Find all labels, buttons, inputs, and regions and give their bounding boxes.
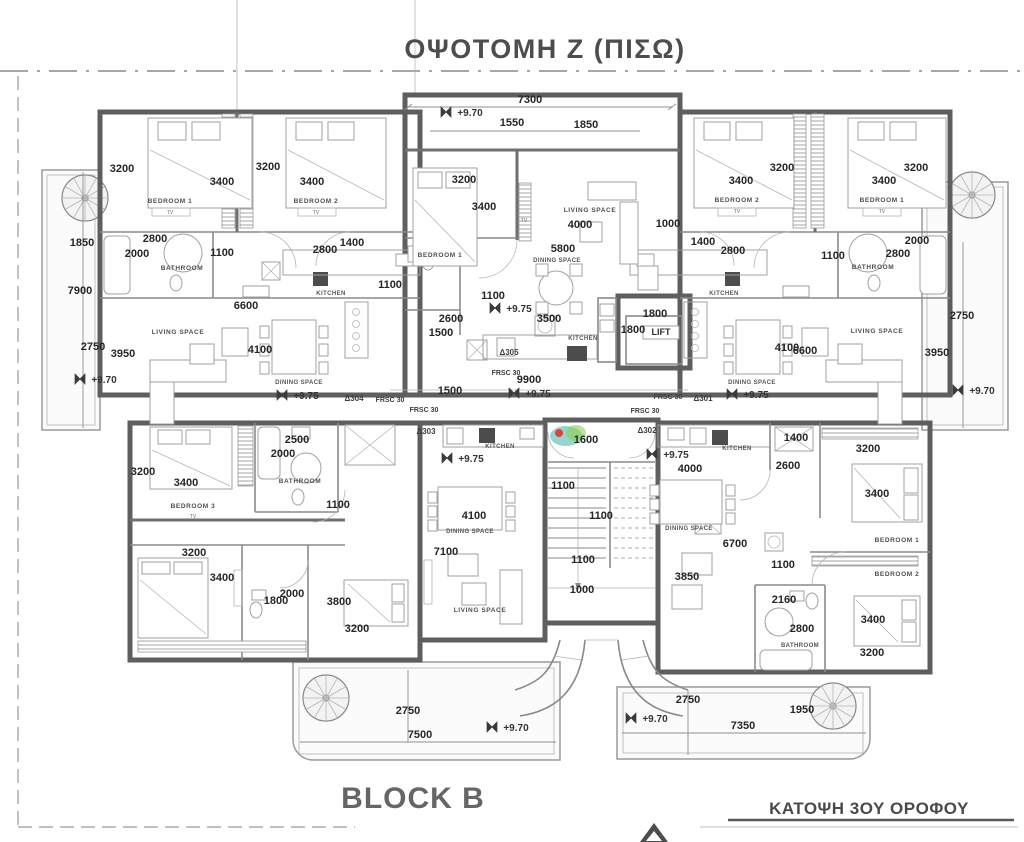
room-label: DINING SPACE xyxy=(728,380,776,386)
dimension-label: 3200 xyxy=(856,443,880,455)
door-marker-label: Δ301 xyxy=(693,394,713,403)
dimension-label: 3850 xyxy=(675,571,699,583)
wardrobe xyxy=(138,641,306,652)
room-label: BEDROOM 3 xyxy=(171,503,216,510)
level-marker-label: +9.70 xyxy=(457,108,483,119)
dimension-label: 3200 xyxy=(904,162,928,174)
door-swing xyxy=(280,560,308,588)
dimension-label: 4100 xyxy=(775,342,799,354)
room-label: KITCHEN xyxy=(709,291,738,297)
level-marker-icon xyxy=(442,453,452,463)
coffee-table xyxy=(672,585,702,609)
dining-table xyxy=(736,320,780,374)
room-label: BEDROOM 1 xyxy=(148,198,193,205)
dimension-label: 6600 xyxy=(234,300,258,312)
fire-rating-label: FRSC 30 xyxy=(410,407,439,414)
coffee-table xyxy=(838,344,862,364)
dimension-label: 3200 xyxy=(110,163,134,175)
room-label: BEDROOM 2 xyxy=(294,198,339,205)
dimension-label: 7900 xyxy=(68,285,92,297)
room-label: DINING SPACE xyxy=(665,526,713,532)
dimension-label: 7350 xyxy=(731,720,755,732)
dimension-label: 2800 xyxy=(143,233,167,245)
dimension-label: 4000 xyxy=(678,463,702,475)
armchair xyxy=(222,328,248,356)
appliance xyxy=(712,430,728,445)
dimension-label: 1500 xyxy=(438,385,462,397)
dimension-label: 2600 xyxy=(439,313,463,325)
spiral-staircase xyxy=(810,683,856,729)
dimension-label: 2750 xyxy=(81,341,105,353)
door-swing xyxy=(479,240,517,278)
level-marker-label: +9.75 xyxy=(743,390,769,401)
fridge xyxy=(690,428,706,444)
toilet xyxy=(170,275,182,291)
level-marker-label: +9.70 xyxy=(642,714,668,725)
dimension-label: 2750 xyxy=(396,705,420,717)
dimension-label: 3400 xyxy=(210,572,234,584)
dimension-label: 3950 xyxy=(925,347,949,359)
toilet xyxy=(868,275,880,291)
dimension-label: 3400 xyxy=(210,176,234,188)
dimension-label: 3400 xyxy=(174,477,198,489)
dimension-label: 1550 xyxy=(500,117,524,129)
room-label: DINING SPACE xyxy=(533,258,581,264)
dimension-label: 2800 xyxy=(721,245,745,257)
level-marker-icon xyxy=(490,303,500,313)
level-marker-icon xyxy=(647,449,657,459)
wardrobe xyxy=(812,556,918,566)
tv-label: TV xyxy=(313,210,320,216)
dimension-label: 1100 xyxy=(210,247,234,259)
dimension-label: 2800 xyxy=(886,248,910,260)
dimension-label: 4000 xyxy=(568,219,592,231)
dimension-label: 3200 xyxy=(131,466,155,478)
dimension-label: 7300 xyxy=(518,94,542,106)
fridge xyxy=(447,428,463,444)
sofa xyxy=(150,360,226,382)
dining-table xyxy=(438,487,502,530)
dimension-label: 1800 xyxy=(264,595,288,607)
dimension-label: 3400 xyxy=(865,488,889,500)
level-marker-label: +9.75 xyxy=(525,389,551,400)
door-marker-label: Δ302 xyxy=(637,426,657,435)
level-marker-icon xyxy=(277,390,287,400)
basin xyxy=(243,286,269,297)
dimension-label: 7500 xyxy=(408,729,432,741)
dimension-label: 1100 xyxy=(378,279,402,291)
plan-title: ΚΑΤΟΨΗ 3ΟΥ ΟΡΟΦΟΥ xyxy=(769,799,969,818)
dimension-label: 1100 xyxy=(551,480,575,492)
tv-label: TV xyxy=(190,514,197,520)
staircase-interior xyxy=(548,425,655,591)
level-marker-label: +9.75 xyxy=(458,454,484,465)
unit-top-left-interior xyxy=(100,112,420,424)
dimension-label: 3200 xyxy=(452,174,476,186)
tv-unit xyxy=(424,560,432,604)
dimension-label: 1100 xyxy=(821,250,845,262)
room-label: KITCHEN xyxy=(485,444,514,450)
room-label: KITCHEN xyxy=(722,446,751,452)
dimension-label: 1400 xyxy=(340,237,364,249)
bathtub xyxy=(104,236,130,294)
coffee-table xyxy=(190,344,214,364)
dimension-label: 2750 xyxy=(950,310,974,322)
lift-label: LIFT xyxy=(652,327,671,337)
room-label: BEDROOM 1 xyxy=(860,197,905,204)
room-label: BATHROOM xyxy=(161,265,204,272)
level-marker-label: +9.70 xyxy=(969,386,995,397)
dimension-label: 1850 xyxy=(70,237,94,249)
dimension-label: 3200 xyxy=(770,162,794,174)
sofa xyxy=(826,360,902,382)
dimension-label: 1000 xyxy=(656,218,680,230)
toilet xyxy=(250,602,262,618)
dining-table xyxy=(660,480,722,524)
dining-table xyxy=(272,320,316,374)
block-label: BLOCK B xyxy=(341,782,485,815)
dimension-label: 1850 xyxy=(574,119,598,131)
room-label: LIVING SPACE xyxy=(851,328,904,335)
wardrobe xyxy=(238,426,253,486)
tv-wall xyxy=(519,183,531,241)
room-label: DINING SPACE xyxy=(446,529,494,535)
room-label: BEDROOM 1 xyxy=(875,537,920,544)
room-label: LIVING SPACE xyxy=(152,329,205,336)
footer-marks xyxy=(640,820,1018,842)
basin xyxy=(783,286,809,297)
level-marker-label: +9.70 xyxy=(503,723,529,734)
sink xyxy=(520,428,534,439)
dimension-label: 2600 xyxy=(776,460,800,472)
level-marker-label: +9.70 xyxy=(91,375,117,386)
fire-rating-label: FRSC 30 xyxy=(631,408,660,415)
room-label: BATHROOM xyxy=(781,643,819,649)
dimension-label: 7100 xyxy=(434,546,458,558)
dimension-label: 1100 xyxy=(771,559,795,571)
floor-plan-page: ΟΨΟΤΟΜΗ Ζ (ΠΙΣΩ) BLOCK B ΚΑΤΟΨΗ 3ΟΥ ΟΡΟΦ… xyxy=(0,0,1024,842)
dimension-label: 3400 xyxy=(729,175,753,187)
room-label: BEDROOM 2 xyxy=(715,197,760,204)
dimension-label: 2800 xyxy=(313,244,337,256)
dimension-label: 3400 xyxy=(300,176,324,188)
wardrobe xyxy=(822,428,918,439)
armchair xyxy=(638,266,658,290)
room-label: KITCHEN xyxy=(316,291,345,297)
room-label: BEDROOM 2 xyxy=(875,571,920,578)
fire-rating-label: FRSC 30 xyxy=(654,394,683,401)
stove-counter xyxy=(345,302,368,358)
dimension-label: 1100 xyxy=(481,290,505,302)
dimension-label: 1100 xyxy=(589,510,613,522)
dimension-label: 3400 xyxy=(472,201,496,213)
dimension-label: 3400 xyxy=(872,175,896,187)
appliance xyxy=(479,428,495,443)
dimension-label: 2000 xyxy=(905,235,929,247)
door-marker-label: Δ304 xyxy=(344,394,364,403)
stove-counter xyxy=(684,302,707,358)
dimension-label: 3950 xyxy=(111,348,135,360)
dimension-label: 4100 xyxy=(462,510,486,522)
room-label: BEDROOM 1 xyxy=(418,252,463,259)
dimension-label: 1000 xyxy=(570,584,594,596)
room-label: LIVING SPACE xyxy=(454,607,507,614)
sink xyxy=(668,428,684,440)
sink xyxy=(637,254,654,266)
door-marker-label: Δ303 xyxy=(416,427,436,436)
dimension-label: 3200 xyxy=(256,161,280,173)
toilet xyxy=(292,489,304,505)
wardrobe xyxy=(811,114,824,228)
room-label: KITCHEN xyxy=(568,336,597,342)
door-marker-label: Δ305 xyxy=(499,348,519,357)
dimension-label: 2750 xyxy=(676,694,700,706)
dimension-label: 5800 xyxy=(551,243,575,255)
dimension-label: 9900 xyxy=(517,374,541,386)
dimension-label: 1800 xyxy=(643,308,667,320)
room-label: LIVING SPACE xyxy=(564,207,617,214)
fire-rating-label: FRSC 30 xyxy=(376,397,405,404)
dimension-label: 1400 xyxy=(691,236,715,248)
dimension-label: 2000 xyxy=(271,448,295,460)
coffee-table xyxy=(462,583,486,605)
drawing-title: ΟΨΟΤΟΜΗ Ζ (ΠΙΣΩ) xyxy=(404,34,685,64)
sofa xyxy=(500,570,522,624)
north-arrow-icon xyxy=(640,823,668,842)
level-marker-label: +9.75 xyxy=(506,304,532,315)
spiral-staircase xyxy=(949,172,995,218)
tv-unit xyxy=(234,570,242,606)
room-label: BATHROOM xyxy=(852,264,895,271)
dimension-label: 3500 xyxy=(537,313,561,325)
dimension-label: 1800 xyxy=(621,324,645,336)
tv-label: TV xyxy=(879,209,886,215)
dimension-label: 2000 xyxy=(125,248,149,260)
dimension-label: 1500 xyxy=(429,327,453,339)
dimension-label: 3800 xyxy=(327,596,351,608)
floor-plan-drawing: ΟΨΟΤΟΜΗ Ζ (ΠΙΣΩ) BLOCK B ΚΑΤΟΨΗ 3ΟΥ ΟΡΟΦ… xyxy=(0,0,1024,842)
tv-label: TV xyxy=(734,209,741,215)
sofa xyxy=(588,182,636,200)
room-label: BATHROOM xyxy=(279,478,322,485)
dimension-label: 3400 xyxy=(861,614,885,626)
wardrobe xyxy=(793,114,806,228)
appliance xyxy=(313,272,328,286)
dimension-label: 3200 xyxy=(345,623,369,635)
tv-label: TV xyxy=(167,210,174,216)
spiral-staircase xyxy=(303,675,349,721)
level-marker-icon xyxy=(441,107,451,117)
dimension-label: 1100 xyxy=(571,554,595,566)
level-marker-label: +9.75 xyxy=(663,450,689,461)
bathtub xyxy=(760,650,812,670)
dimension-label: 1100 xyxy=(326,499,350,511)
top-dimension-band xyxy=(405,107,680,150)
dimension-label: 4100 xyxy=(248,344,272,356)
dimension-label: 3200 xyxy=(860,647,884,659)
dimension-label: 3200 xyxy=(182,547,206,559)
level-marker-label: +9.75 xyxy=(293,391,319,402)
dimension-label: 1400 xyxy=(784,432,808,444)
dimension-label: 1600 xyxy=(574,434,598,446)
dimension-label: 2500 xyxy=(285,434,309,446)
appliance xyxy=(725,272,740,286)
toilet xyxy=(806,593,818,609)
tv-label: TV xyxy=(521,218,528,224)
dimension-label: 2800 xyxy=(790,623,814,635)
dimension-label: 1950 xyxy=(790,704,814,716)
door-swing xyxy=(740,470,770,500)
room-label: DINING SPACE xyxy=(275,380,323,386)
appliance xyxy=(567,346,587,361)
dimension-label: 6700 xyxy=(723,538,747,550)
dimension-label: 2160 xyxy=(772,594,796,606)
